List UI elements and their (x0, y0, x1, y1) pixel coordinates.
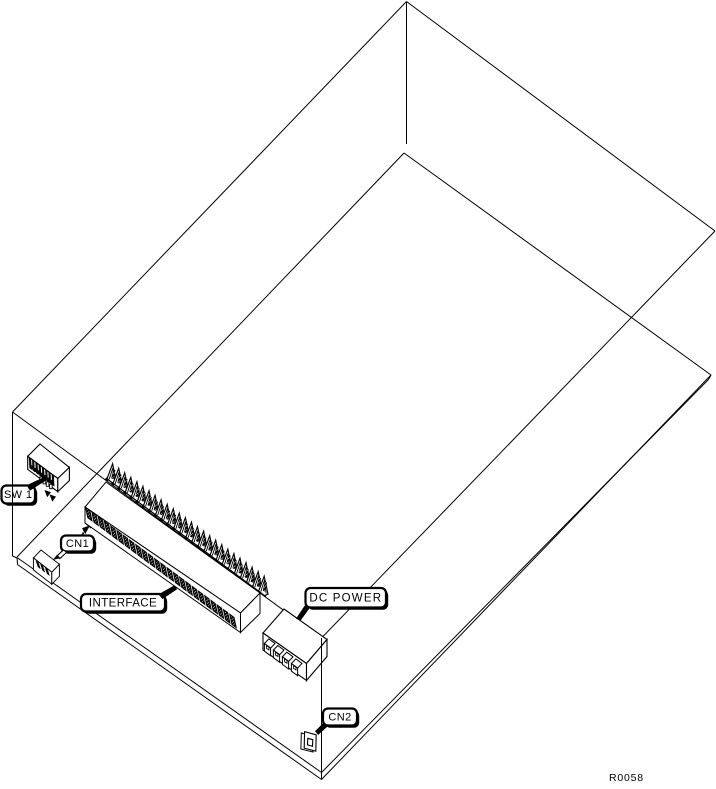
svg-text:CN1: CN1 (66, 538, 89, 550)
svg-text:CN2: CN2 (328, 712, 351, 724)
svg-text:INTERFACE: INTERFACE (89, 598, 157, 610)
svg-text:DC POWER: DC POWER (309, 593, 382, 605)
svg-text:R0058: R0058 (609, 772, 644, 784)
svg-text:SW 1: SW 1 (4, 489, 33, 501)
